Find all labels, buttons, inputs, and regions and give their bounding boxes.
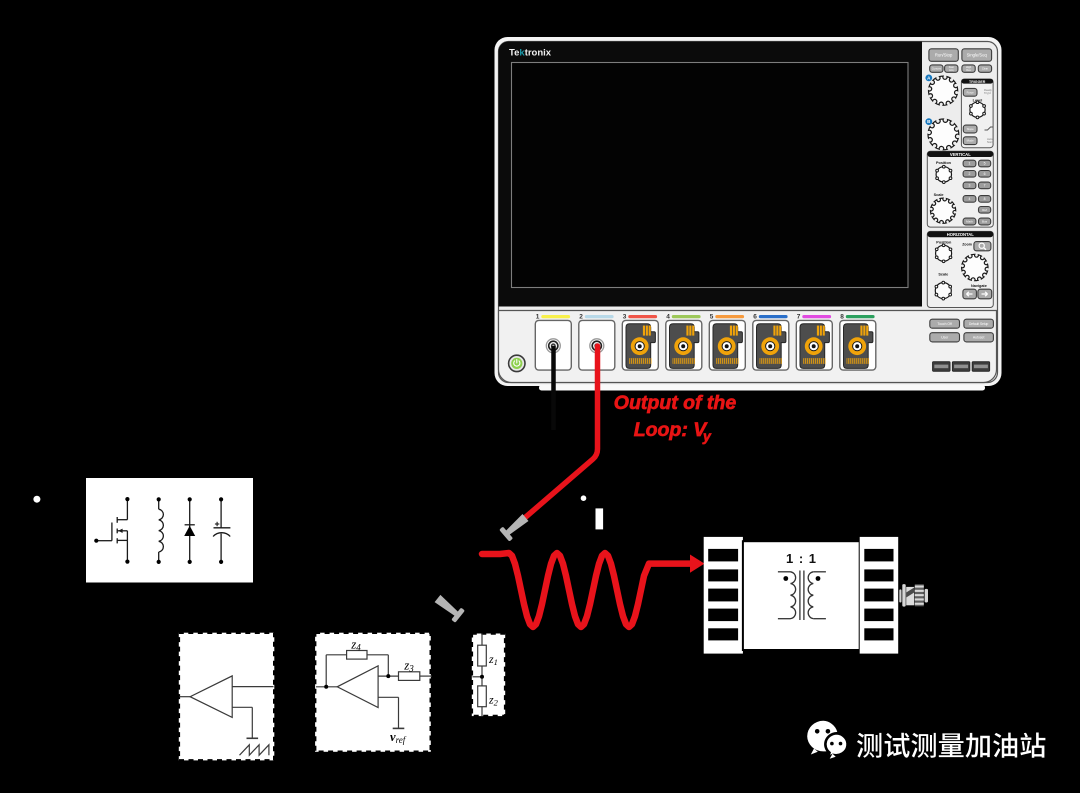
svg-text:2: 2 [579, 314, 583, 321]
svg-text:8: 8 [840, 314, 844, 321]
svg-text:1 : 1: 1 : 1 [786, 551, 817, 566]
svg-text:Bus: Bus [982, 220, 988, 224]
svg-text:Acq: Acq [949, 68, 954, 72]
svg-text:7: 7 [797, 314, 801, 321]
svg-text:Clear: Clear [982, 67, 988, 71]
svg-text:Scale: Scale [938, 273, 948, 277]
svg-text:Single/Seq: Single/Seq [967, 53, 988, 58]
svg-text:VERTICAL: VERTICAL [950, 152, 971, 157]
svg-text:User: User [941, 336, 949, 340]
svg-text:1: 1 [536, 314, 540, 321]
svg-text:Autoset: Autoset [973, 336, 985, 340]
svg-text:6: 6 [984, 172, 986, 176]
svg-text:2: 2 [969, 172, 971, 176]
svg-text:6: 6 [753, 314, 757, 321]
svg-text:Force: Force [967, 90, 975, 94]
svg-text:Math: Math [966, 220, 973, 224]
svg-text:3: 3 [969, 184, 971, 188]
svg-text:Navigate: Navigate [971, 284, 987, 288]
svg-text:y: y [702, 428, 712, 444]
svg-text:1: 1 [969, 162, 971, 166]
svg-text:Slope: Slope [967, 127, 975, 131]
svg-text:Ref: Ref [982, 208, 987, 212]
svg-text:7: 7 [984, 184, 986, 188]
svg-text:Zoom: Zoom [962, 242, 972, 246]
svg-text:Touch Off: Touch Off [937, 322, 952, 326]
svg-text:Mode: Mode [967, 139, 974, 143]
svg-text:Loop: V: Loop: V [634, 419, 709, 441]
svg-text:Norm: Norm [987, 140, 994, 144]
svg-text:Res: Res [966, 68, 971, 72]
svg-text:Run/Stop: Run/Stop [935, 53, 953, 58]
svg-text:Output of the: Output of the [614, 392, 737, 414]
svg-text:8: 8 [984, 197, 986, 201]
svg-text:5: 5 [984, 162, 986, 166]
svg-text:Default Setup: Default Setup [969, 322, 989, 326]
svg-text:Scale: Scale [934, 193, 944, 197]
svg-text:5: 5 [710, 314, 714, 321]
svg-text:Cursors: Cursors [932, 67, 942, 71]
svg-text:Tektronix: Tektronix [509, 48, 552, 59]
svg-text:HORIZONTAL: HORIZONTAL [947, 232, 975, 237]
svg-text:TRIGGER: TRIGGER [969, 80, 986, 84]
svg-text:Ready: Ready [984, 88, 992, 92]
svg-text:Trig’d: Trig’d [984, 91, 991, 95]
svg-text:4: 4 [969, 197, 971, 201]
svg-text:4: 4 [666, 314, 670, 321]
svg-text:Position: Position [936, 161, 952, 165]
svg-text:Auto: Auto [987, 137, 993, 141]
svg-text:3: 3 [623, 314, 627, 321]
